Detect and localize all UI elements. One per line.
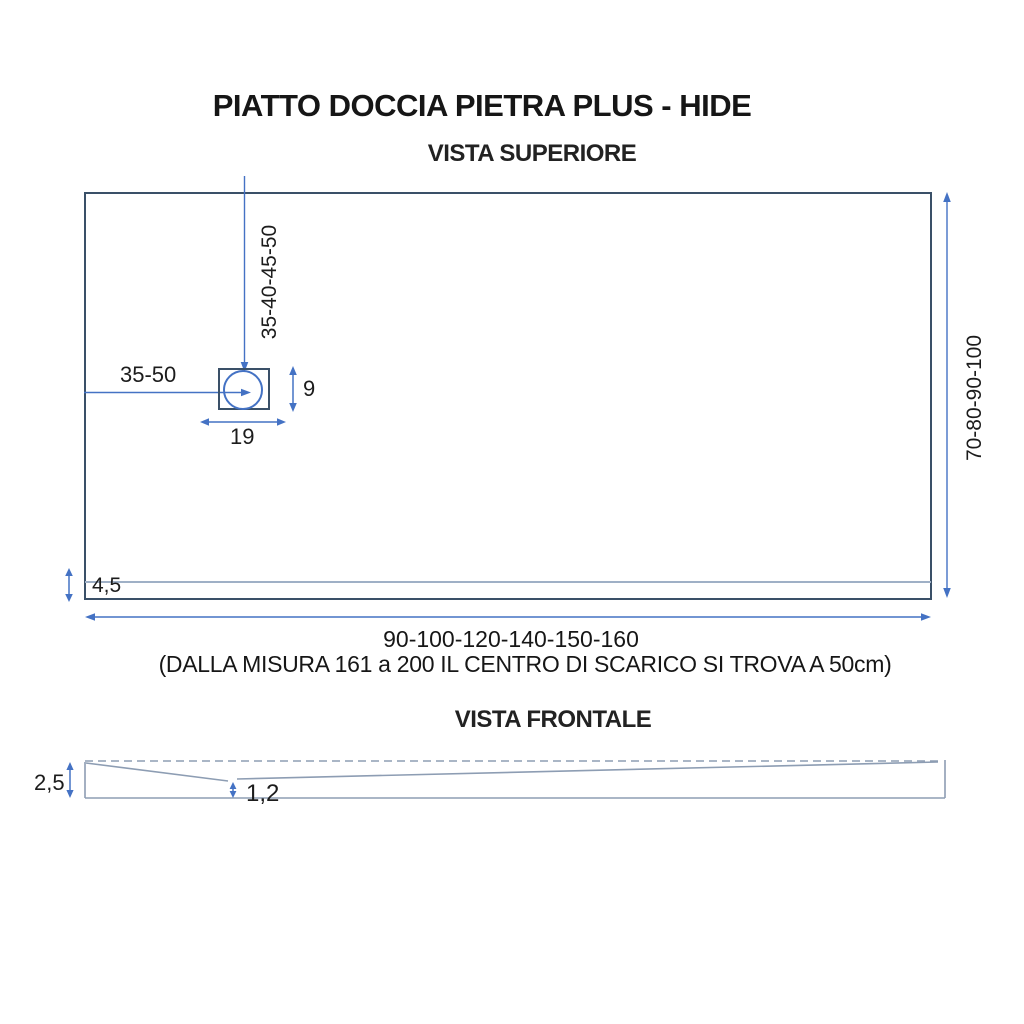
dimension-line-drain-from-top-icon [238,176,251,372]
diagram-canvas: PIATTO DOCCIA PIETRA PLUS - HIDE VISTA S… [0,0,1024,1024]
front-view-drawing [30,740,990,820]
dimension-arrow-tray-width-icon [85,610,931,624]
label-tray-depth-options: 70-80-90-100 [963,323,987,473]
label-drain-width: 19 [230,424,254,450]
drain-circle [223,370,263,410]
label-drain-offset-from-left: 35-50 [120,362,176,388]
front-view-label: VISTA FRONTALE [106,706,1000,734]
dimension-arrow-border-strip-icon [62,568,76,602]
dimension-arrow-tray-depth-icon [940,192,954,598]
page-title: PIATTO DOCCIA PIETRA PLUS - HIDE [0,88,964,124]
label-front-edge-height: 2,5 [34,770,65,796]
top-view-label: VISTA SUPERIORE [100,140,964,168]
label-drain-offset-from-top: 35-40-45-50 [258,217,282,347]
label-border-strip-height: 4,5 [92,574,121,598]
top-view-border-strip-line [85,581,931,583]
label-tray-width-options: 90-100-120-140-150-160 [0,626,1022,653]
dimension-arrow-drain-height-icon [286,366,300,412]
label-drain-height: 9 [303,376,315,402]
label-front-drain-recess-depth: 1,2 [246,780,279,808]
label-drain-note: (DALLA MISURA 161 a 200 IL CENTRO DI SCA… [26,651,1024,678]
